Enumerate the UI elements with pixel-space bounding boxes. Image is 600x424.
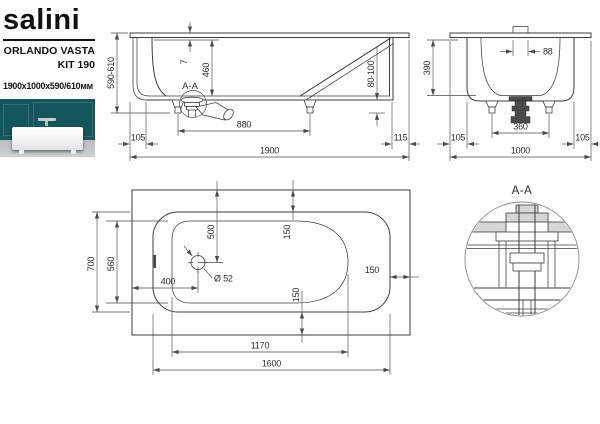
dim-foot-spacing: 880	[237, 120, 252, 130]
dim-overflow-width: 88	[543, 47, 553, 57]
dim-total-width: 1000	[511, 146, 530, 156]
side-rim	[130, 33, 409, 38]
dim-total-length: 1900	[260, 146, 279, 156]
end-shell	[467, 38, 574, 102]
end-view: 88 390 360 105 105 1000	[422, 27, 600, 162]
technical-drawing: A-A 590-610 7 460 80-100	[0, 0, 600, 424]
dim-rim-width: 700	[86, 257, 96, 272]
end-drain-assembly	[509, 97, 532, 124]
end-overflow	[513, 27, 528, 34]
spec-sheet: salini ORLANDO VASTA KIT 190 1900x1000x5…	[0, 0, 600, 424]
side-view: A-A 590-610 7 460 80-100	[106, 22, 420, 161]
dim-height: 590-610	[106, 57, 116, 89]
top-view: Ø 52 700 560 500 400 150 150	[86, 180, 419, 375]
dim-drain-offset-top: 500	[206, 225, 216, 240]
side-dimensions: 590-610 7 460 80-100 105 880	[106, 22, 420, 161]
dim-end-left-offset: 105	[451, 133, 466, 143]
dim-end-foot-spacing: 360	[513, 122, 528, 132]
dim-bowl-length: 1170	[251, 341, 270, 351]
side-right-wall	[390, 38, 394, 101]
dim-bowl-width: 560	[106, 257, 116, 272]
dim-gap-top: 150	[282, 225, 292, 240]
top-inner-rim	[153, 212, 390, 312]
side-slope	[300, 39, 390, 97]
section-detail-title: A-A	[512, 185, 533, 197]
side-left-wall	[133, 38, 149, 101]
dim-end-right-offset: 105	[575, 133, 590, 143]
end-rim	[450, 33, 591, 38]
dim-drain-offset-left: 400	[161, 277, 176, 287]
dim-rim-length: 1600	[262, 359, 281, 369]
side-bowl-left	[152, 38, 166, 96]
section-callout-label: A-A	[182, 81, 199, 92]
dim-drain-diameter: Ø 52	[214, 274, 233, 284]
dim-left-offset: 105	[131, 133, 146, 143]
dim-inner-depth: 460	[201, 63, 211, 78]
dim-right-offset: 115	[394, 133, 408, 143]
dim-gap-bottom: 150	[291, 288, 301, 303]
top-bowl	[172, 221, 348, 303]
top-dimensions: Ø 52 700 560 500 400 150 150	[86, 180, 419, 375]
dim-rim-thickness: 7	[179, 59, 189, 64]
dim-gap-right: 150	[365, 265, 380, 275]
section-detail: A-A	[464, 185, 590, 316]
side-drain-assembly	[181, 97, 235, 121]
dim-bottom-clearance: 80-100	[366, 60, 376, 87]
side-slope-outer	[306, 44, 394, 101]
section-detail-content	[464, 205, 590, 316]
dim-end-depth: 390	[422, 61, 432, 76]
